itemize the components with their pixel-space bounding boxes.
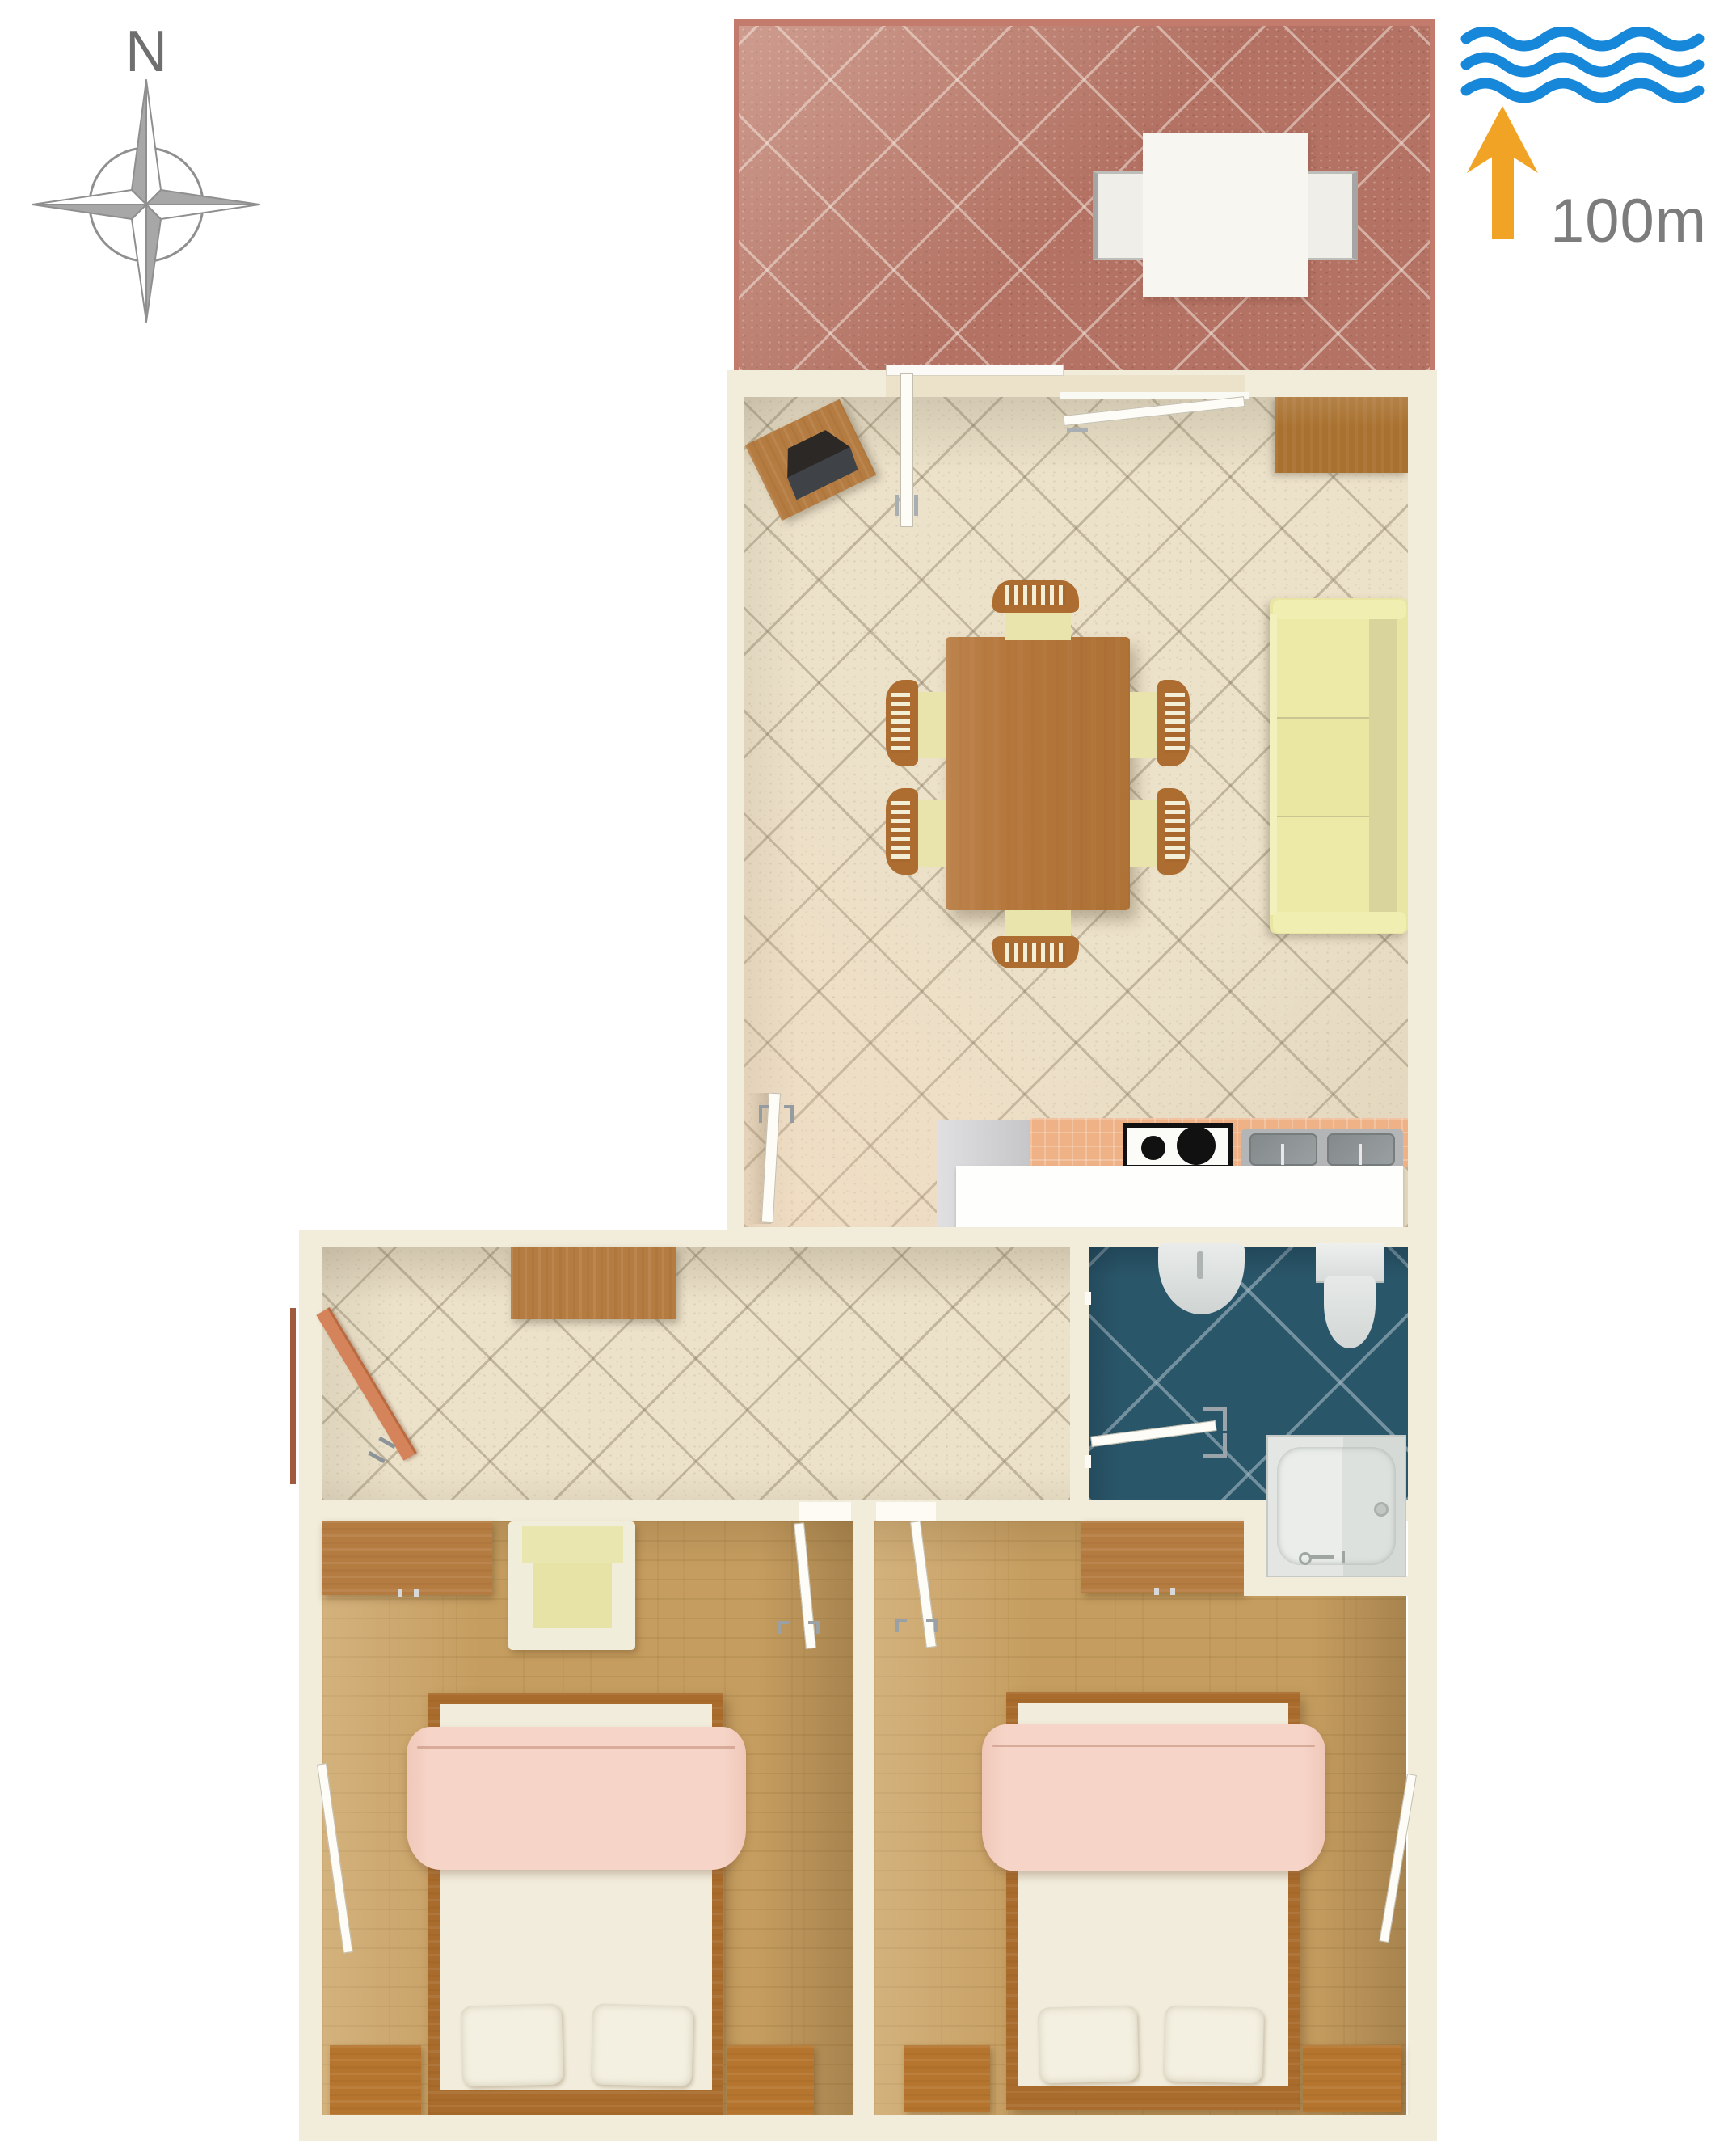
svg-text:N: N — [125, 20, 167, 84]
